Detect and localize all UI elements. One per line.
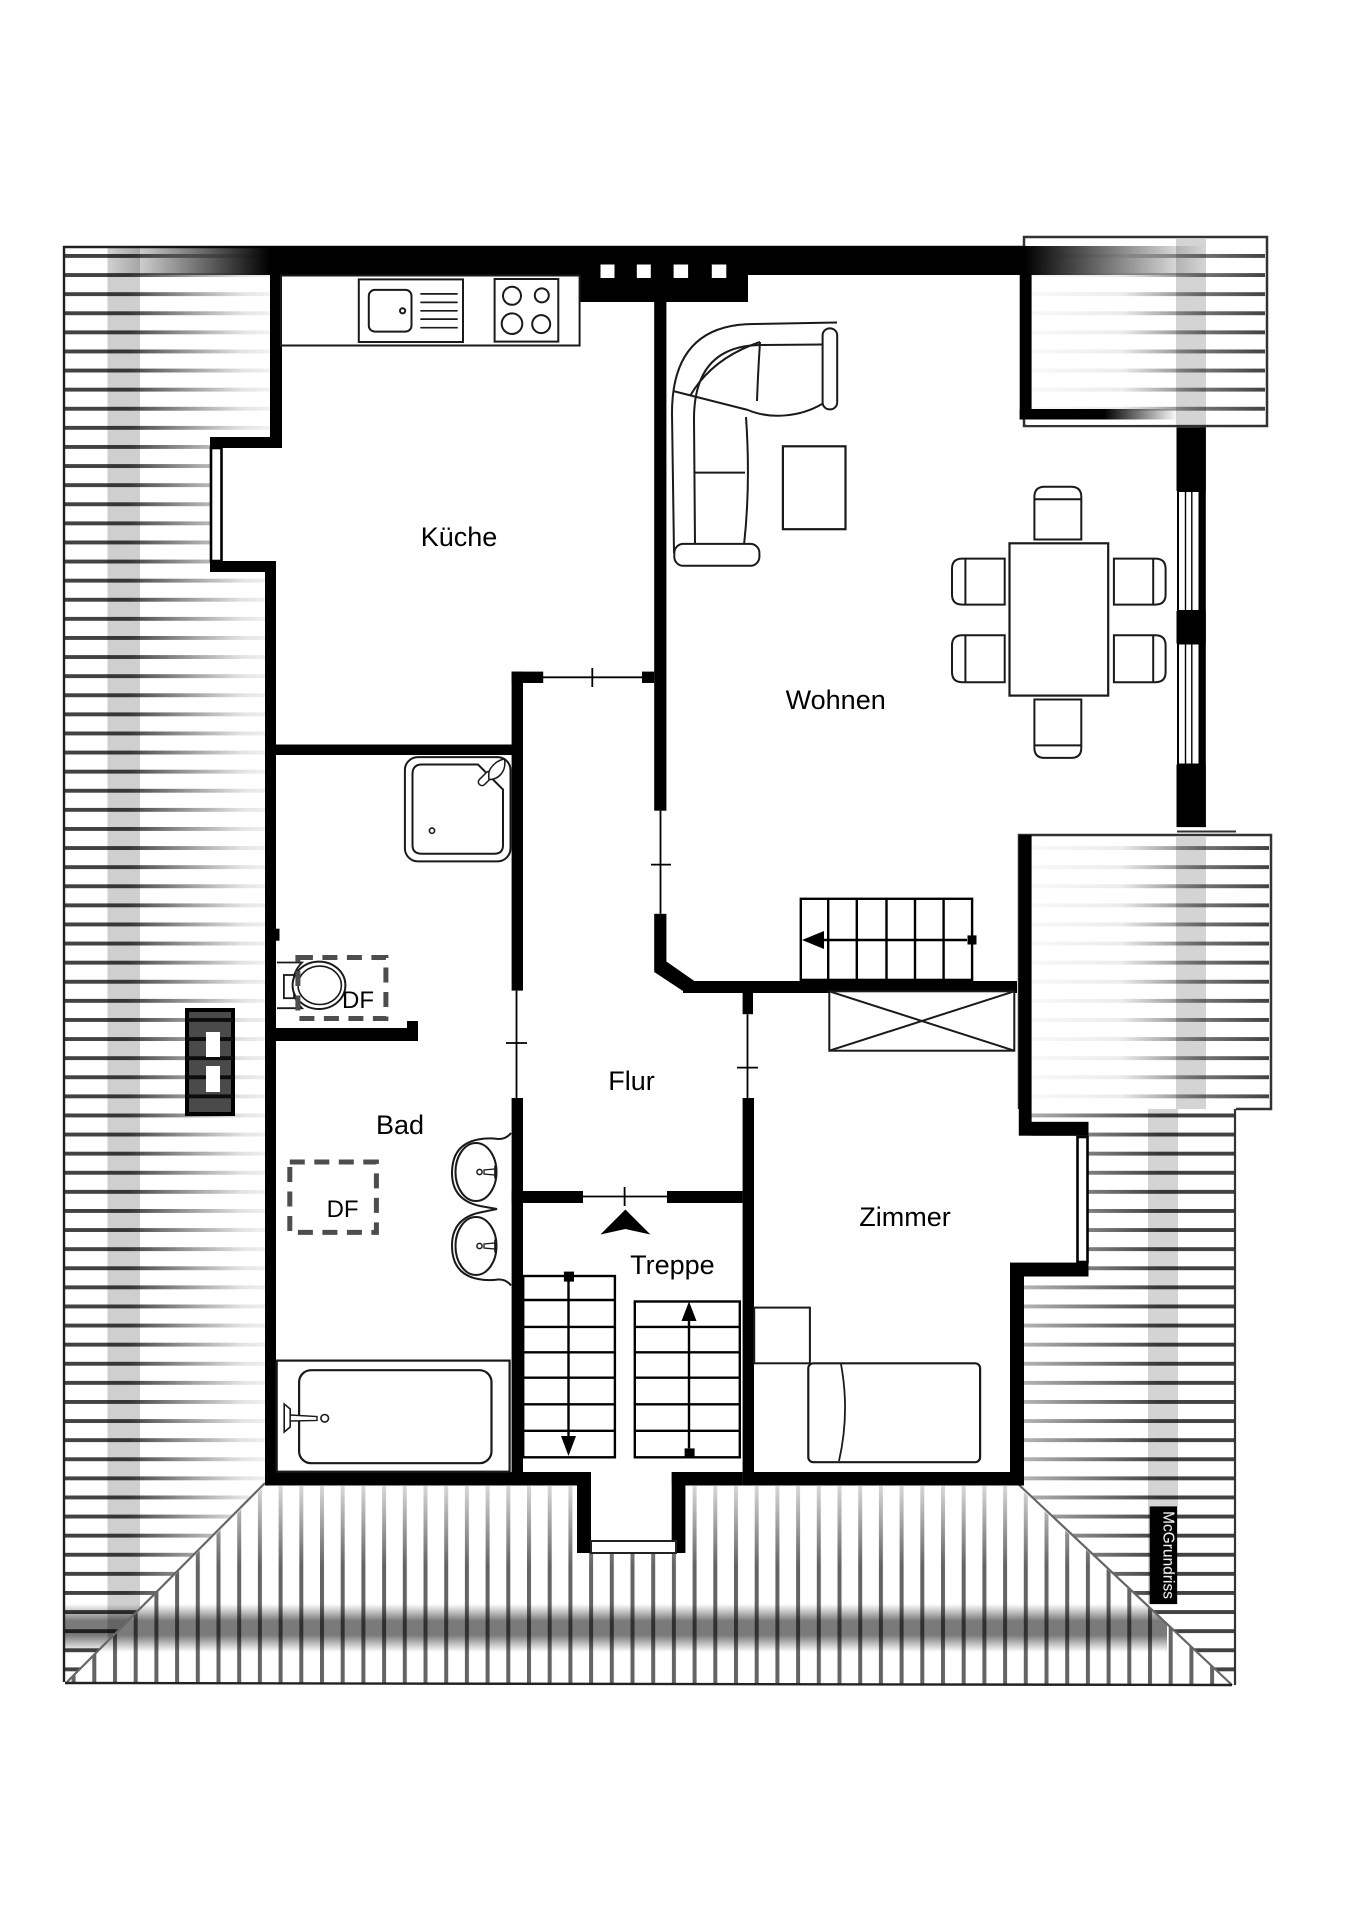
svg-text:Wohnen: Wohnen [786, 685, 886, 715]
svg-text:DF: DF [342, 987, 374, 1014]
svg-text:Flur: Flur [608, 1066, 655, 1096]
svg-text:Treppe: Treppe [630, 1250, 715, 1280]
svg-text:Bad: Bad [376, 1110, 424, 1140]
svg-text:DF: DF [327, 1196, 359, 1223]
svg-text:McGrundriss: McGrundriss [1159, 1511, 1176, 1599]
svg-text:Küche: Küche [421, 522, 498, 552]
svg-text:Zimmer: Zimmer [859, 1202, 950, 1232]
